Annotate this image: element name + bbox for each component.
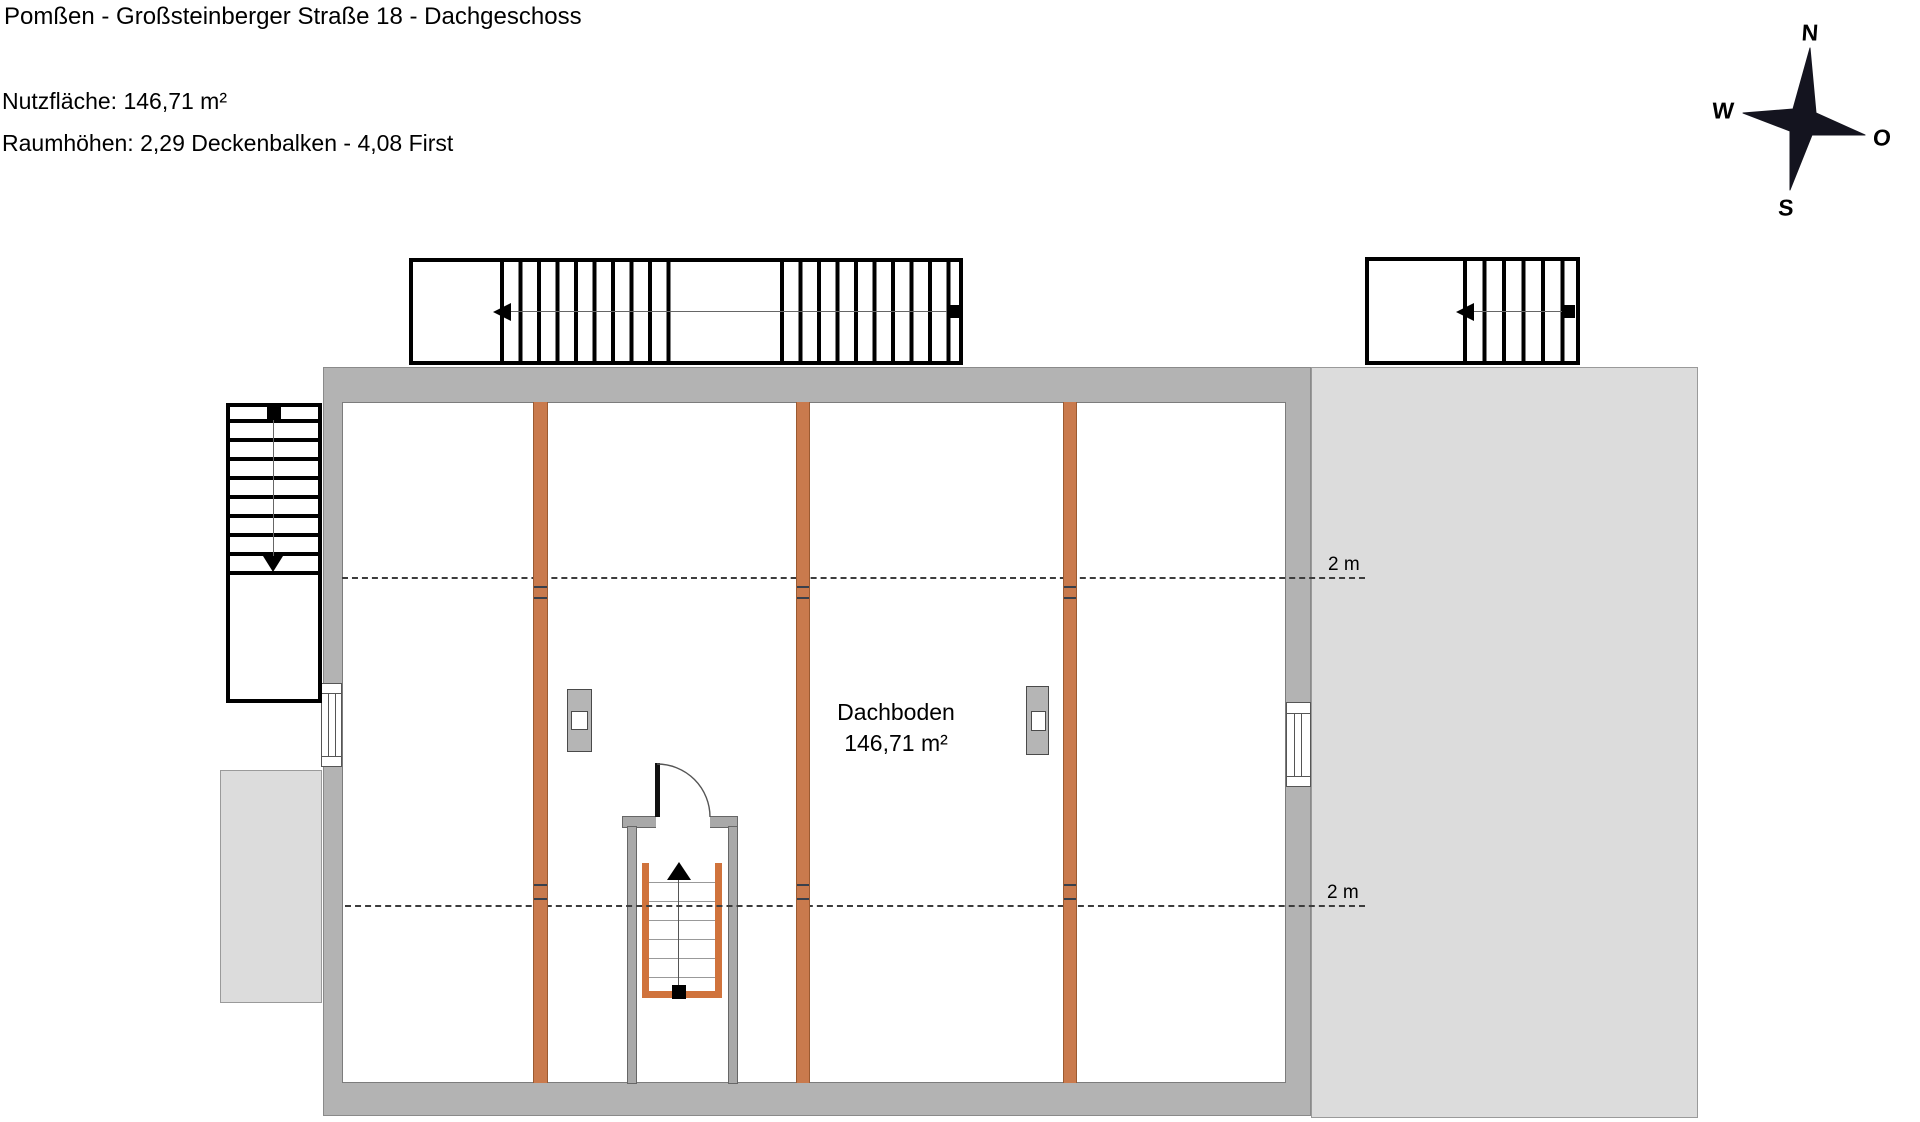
stairs-north-short [1365,257,1580,365]
room-area: 146,71 m² [771,728,1021,759]
room-heights-line: Raumhöhen: 2,29 Deckenbalken - 4,08 Firs… [2,130,453,157]
chimney-east [1026,686,1049,755]
roof-beam-3 [1063,402,1077,1083]
height-line-upper [342,577,1365,579]
stair-direction-arrow [1456,303,1474,321]
beam-joint [1064,884,1076,886]
chimney-west [567,689,592,752]
beam-joint [534,586,547,588]
beam-joint [534,597,547,599]
room-name: Dachboden [771,697,1021,728]
stairs-west [226,403,322,703]
usable-area-line: Nutzfläche: 146,71 m² [2,88,227,115]
stair-start-marker [672,985,686,999]
stair-start-marker [267,407,281,420]
stair-stringer-left [642,863,649,998]
stair-direction-arrow [667,862,691,880]
stair-treads-interior [649,882,715,992]
chimney-flue [571,711,588,730]
window-west [321,683,342,767]
compass-rose: N W O S [1690,5,1920,235]
beam-joint [534,898,547,900]
stair-direction-line [505,311,954,312]
beam-joint [797,597,809,599]
stair-direction-line [1468,311,1568,312]
beam-joint [534,884,547,886]
window-east [1286,702,1311,787]
beam-joint [1064,597,1076,599]
floorplan-canvas: Pomßen - Großsteinberger Straße 18 - Dac… [0,0,1920,1122]
stairs-north-long [409,258,963,365]
stair-stringer-right [715,863,722,995]
stair-start-marker [947,305,960,318]
room-label: Dachboden 146,71 m² [771,697,1021,759]
height-line-lower [345,905,1365,907]
compass-north-label: N [1801,20,1820,47]
stairwell-wall-right [728,826,738,1084]
stair-direction-line [678,880,679,988]
roof-area-left [220,770,322,1003]
compass-east-label: O [1872,125,1892,152]
stair-direction-line [273,420,274,560]
beam-joint [1064,586,1076,588]
beam-joint [797,898,809,900]
compass-south-label: S [1777,195,1794,222]
roof-beam-1 [533,402,548,1083]
height-label-upper: 2 m [1328,554,1360,576]
stair-start-marker [1562,305,1575,318]
page-title: Pomßen - Großsteinberger Straße 18 - Dac… [4,3,582,31]
height-label-lower: 2 m [1327,882,1359,904]
window-glazing [1294,713,1302,777]
beam-joint [797,884,809,886]
beam-joint [1064,898,1076,900]
stair-direction-arrow [493,303,511,321]
roof-area-right [1311,367,1698,1118]
compass-west-label: W [1711,98,1735,125]
window-glazing [328,693,336,757]
chimney-flue [1031,711,1046,731]
door-swing-arc [650,755,725,830]
beam-joint [797,586,809,588]
stair-direction-arrow [263,556,283,572]
stairwell-wall-left [627,826,637,1084]
